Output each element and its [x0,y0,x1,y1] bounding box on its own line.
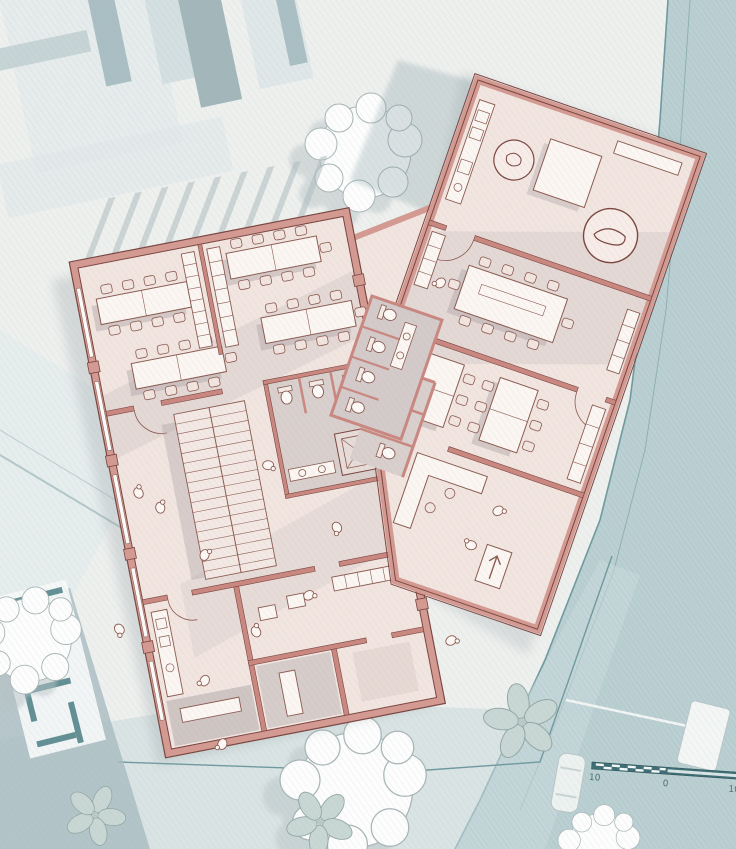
paper-texture-overlay [0,0,736,849]
floor-plan-drawing: 10 0 10 [0,0,736,849]
site-plan-canvas: 10 0 10 [0,0,736,849]
